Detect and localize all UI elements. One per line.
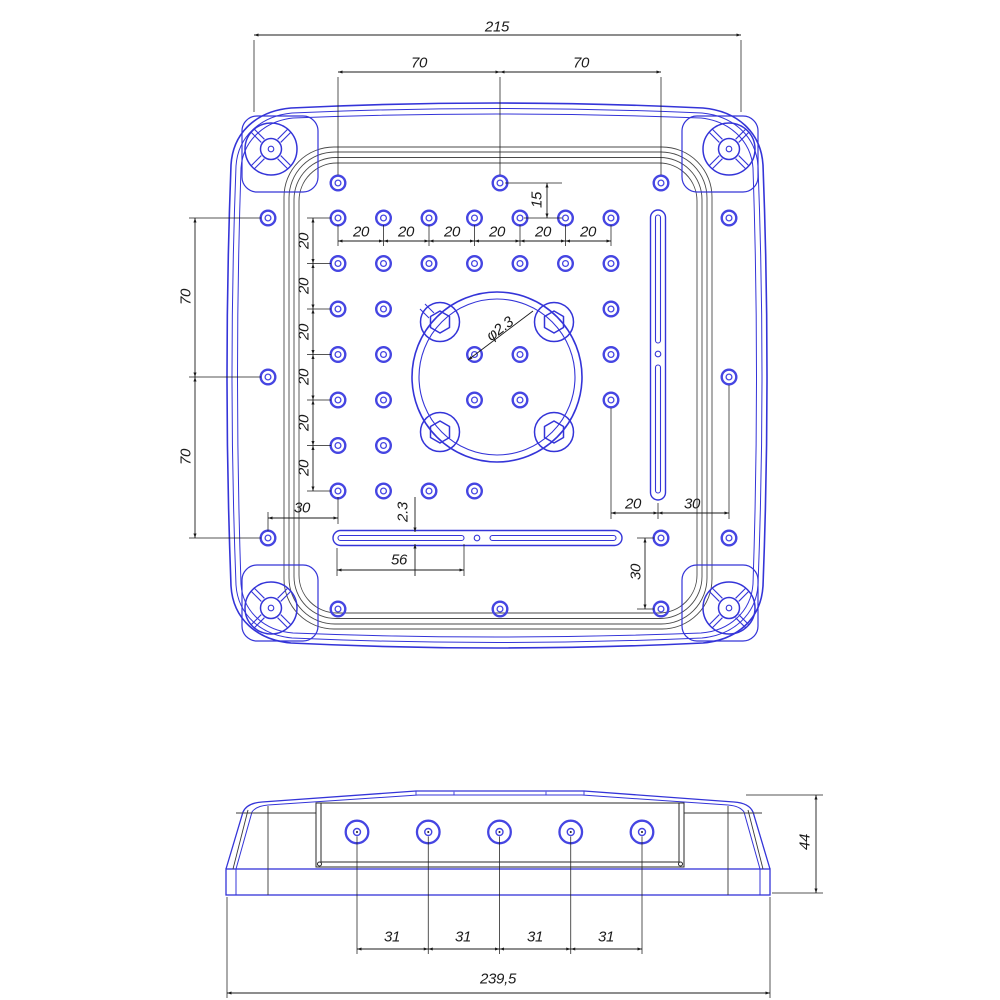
mounting-hole bbox=[376, 393, 391, 408]
mounting-hole bbox=[654, 531, 669, 546]
central-boss bbox=[412, 292, 582, 462]
dim-left-span-upper-label: 70 bbox=[179, 289, 194, 305]
mounting-hole bbox=[467, 347, 482, 362]
dim-boss-pitch-3-label: 31 bbox=[527, 930, 543, 945]
dimension-chains bbox=[307, 218, 642, 954]
mounting-hole bbox=[467, 484, 482, 499]
dim-grid-pitch-h1-label: 20 bbox=[353, 225, 369, 240]
mounting-hole bbox=[422, 256, 437, 271]
mounting-hole bbox=[722, 531, 737, 546]
dim-top-span-left-label: 70 bbox=[411, 56, 427, 71]
mounting-hole bbox=[467, 393, 482, 408]
mounting-hole bbox=[654, 602, 669, 617]
dim-overall-width-label: 215 bbox=[485, 20, 509, 35]
mounting-hole bbox=[654, 176, 669, 191]
mounting-hole bbox=[261, 211, 276, 226]
dim-slot-width-label: 2.3 bbox=[396, 502, 411, 522]
dim-grid-pitch-v6-label: 20 bbox=[297, 460, 312, 476]
corner-boss bbox=[242, 116, 318, 192]
dim-grid-pitch-h3-label: 20 bbox=[444, 225, 460, 240]
mounting-hole bbox=[493, 602, 508, 617]
mounting-hole bbox=[331, 438, 346, 453]
corner-boss bbox=[682, 565, 758, 641]
side-view bbox=[226, 791, 770, 895]
mounting-hole bbox=[513, 347, 528, 362]
hex-boss bbox=[421, 413, 460, 452]
dim-grid-pitch-h2-label: 20 bbox=[398, 225, 414, 240]
mounting-hole bbox=[376, 438, 391, 453]
mounting-hole bbox=[331, 211, 346, 226]
mounting-hole bbox=[331, 302, 346, 317]
mounting-hole bbox=[604, 393, 619, 408]
dim-side-overall-width-label: 239,5 bbox=[480, 972, 516, 987]
mounting-hole bbox=[376, 302, 391, 317]
inner-plate-step bbox=[284, 147, 712, 629]
dim-grid-pitch-h6-label: 20 bbox=[580, 225, 596, 240]
mounting-hole bbox=[331, 176, 346, 191]
mounting-hole bbox=[261, 370, 276, 385]
drawing-sheet: 215 70 70 15 20 20 20 20 20 20 20 20 20 … bbox=[0, 0, 1000, 1000]
dim-top-span-right-label: 70 bbox=[573, 56, 589, 71]
dim-bottom-left-offset-label: 30 bbox=[294, 501, 310, 516]
corner-mounting-bosses bbox=[242, 116, 758, 641]
mounting-hole bbox=[513, 393, 528, 408]
mounting-hole bbox=[604, 302, 619, 317]
dim-top-offset-label: 15 bbox=[530, 192, 545, 208]
dim-grid-pitch-v3-label: 20 bbox=[297, 324, 312, 340]
mounting-hole bbox=[376, 484, 391, 499]
dim-bottom-right-vertical-label: 30 bbox=[629, 564, 644, 580]
hex-boss bbox=[535, 413, 574, 452]
dim-grid-pitch-v5-label: 20 bbox=[297, 415, 312, 431]
cad-drawing bbox=[0, 0, 1000, 1000]
dim-side-overall-height-label: 44 bbox=[798, 834, 813, 850]
mounting-hole bbox=[331, 256, 346, 271]
mounting-hole bbox=[722, 370, 737, 385]
dim-boss-pitch-2-label: 31 bbox=[455, 930, 471, 945]
dim-grid-pitch-v2-label: 20 bbox=[297, 278, 312, 294]
dim-boss-pitch-4-label: 31 bbox=[598, 930, 614, 945]
mounting-hole bbox=[558, 256, 573, 271]
vertical-slot bbox=[651, 210, 666, 500]
mounting-hole bbox=[331, 393, 346, 408]
mounting-hole bbox=[467, 256, 482, 271]
mounting-hole bbox=[513, 256, 528, 271]
mounting-hole bbox=[422, 211, 437, 226]
mounting-hole bbox=[331, 484, 346, 499]
hex-boss bbox=[535, 303, 574, 342]
dim-left-span-lower-label: 70 bbox=[179, 449, 194, 465]
mounting-hole bbox=[467, 211, 482, 226]
mounting-hole bbox=[722, 211, 737, 226]
mounting-hole bbox=[331, 347, 346, 362]
dim-grid-pitch-v1-label: 20 bbox=[297, 233, 312, 249]
dim-slot-offset-right-label: 20 bbox=[625, 497, 641, 512]
mounting-hole bbox=[331, 602, 346, 617]
mounting-hole bbox=[604, 347, 619, 362]
dim-grid-pitch-h5-label: 20 bbox=[535, 225, 551, 240]
mounting-hole bbox=[604, 256, 619, 271]
mounting-hole bbox=[376, 347, 391, 362]
dim-right-hole-offset-label: 30 bbox=[684, 497, 700, 512]
dim-slot-length-label: 56 bbox=[391, 553, 407, 568]
mounting-hole bbox=[261, 531, 276, 546]
mounting-hole bbox=[376, 211, 391, 226]
horizontal-slot bbox=[333, 531, 622, 546]
dim-grid-pitch-v4-label: 20 bbox=[297, 369, 312, 385]
mounting-hole bbox=[376, 256, 391, 271]
hex-boss bbox=[421, 303, 460, 342]
mounting-hole bbox=[422, 484, 437, 499]
mounting-hole bbox=[604, 211, 619, 226]
dim-grid-pitch-h4-label: 20 bbox=[489, 225, 505, 240]
dim-boss-pitch-1-label: 31 bbox=[384, 930, 400, 945]
